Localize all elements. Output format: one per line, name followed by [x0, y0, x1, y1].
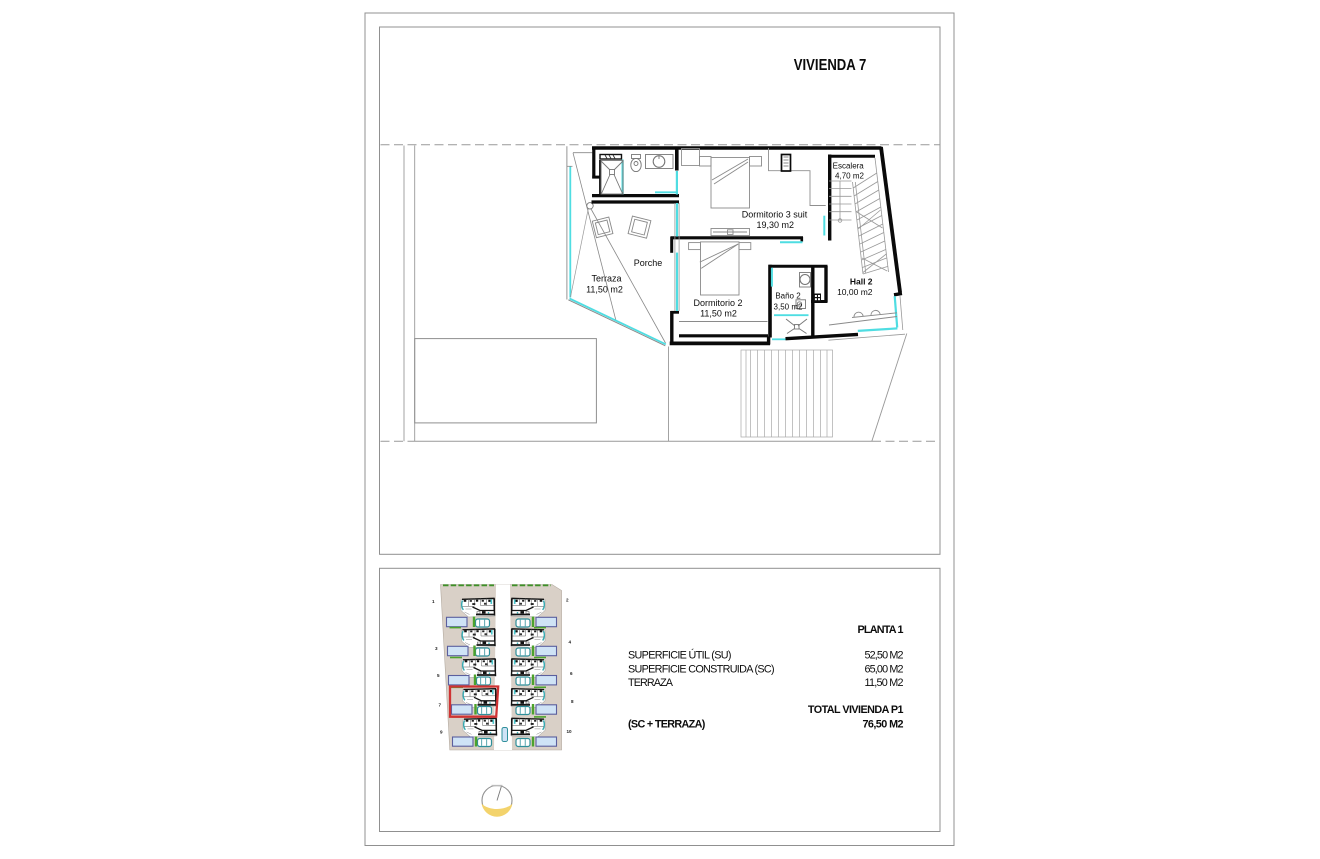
svg-text:2: 2 — [566, 598, 569, 603]
svg-text:10,00 m2: 10,00 m2 — [837, 287, 873, 297]
svg-text:SUPERFICIE CONSTRUIDA (SC): SUPERFICIE CONSTRUIDA (SC) — [628, 664, 775, 676]
svg-text:11,50 M2: 11,50 M2 — [865, 677, 904, 689]
svg-text:VIVIENDA 7: VIVIENDA 7 — [794, 57, 867, 74]
svg-text:76,50 M2: 76,50 M2 — [863, 719, 904, 731]
svg-text:6: 6 — [570, 671, 573, 676]
svg-text:PLANTA 1: PLANTA 1 — [858, 624, 904, 636]
svg-text:(SC + TERRAZA): (SC + TERRAZA) — [628, 719, 706, 731]
svg-text:11,50 m2: 11,50 m2 — [700, 309, 737, 319]
svg-text:Hall 2: Hall 2 — [850, 276, 873, 286]
svg-text:8: 8 — [571, 699, 574, 704]
svg-text:Terraza: Terraza — [591, 274, 621, 284]
svg-text:4: 4 — [569, 640, 572, 645]
svg-text:65,00 M2: 65,00 M2 — [865, 664, 904, 676]
svg-text:52,50 M2: 52,50 M2 — [865, 650, 904, 662]
svg-text:19,30 m2: 19,30 m2 — [757, 220, 795, 230]
svg-text:3: 3 — [435, 646, 438, 651]
svg-text:10: 10 — [567, 729, 573, 734]
svg-text:7: 7 — [439, 703, 442, 708]
svg-text:3,50 m2: 3,50 m2 — [774, 303, 803, 312]
svg-text:Baño 2: Baño 2 — [775, 292, 801, 301]
svg-text:TERRAZA: TERRAZA — [628, 677, 674, 689]
svg-text:SUPERFICIE ÚTIL (SU): SUPERFICIE ÚTIL (SU) — [628, 649, 732, 662]
svg-text:11,50 m2: 11,50 m2 — [586, 284, 623, 294]
svg-text:Dormitorio 2: Dormitorio 2 — [693, 298, 742, 308]
svg-text:Dormitorio 3 suit: Dormitorio 3 suit — [742, 210, 808, 220]
svg-text:5: 5 — [437, 673, 440, 678]
svg-text:Porche: Porche — [634, 258, 663, 268]
svg-text:1: 1 — [432, 599, 435, 604]
svg-text:Escalera: Escalera — [833, 162, 865, 171]
svg-text:4,70 m2: 4,70 m2 — [835, 172, 864, 181]
svg-text:9: 9 — [440, 730, 443, 735]
svg-text:TOTAL VIVIENDA P1: TOTAL VIVIENDA P1 — [808, 704, 904, 716]
